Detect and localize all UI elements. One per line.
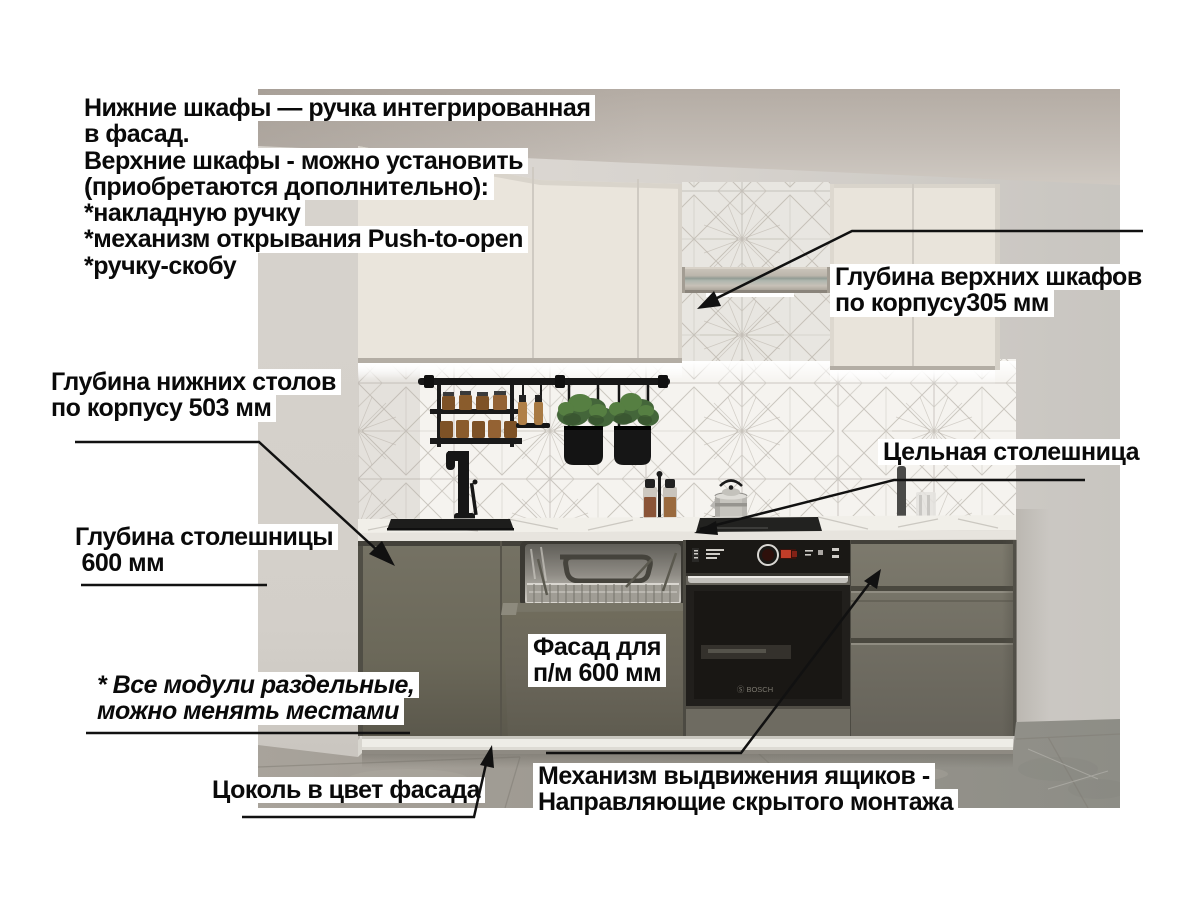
svg-text:Ⓢ BOSCH: Ⓢ BOSCH xyxy=(737,685,773,694)
